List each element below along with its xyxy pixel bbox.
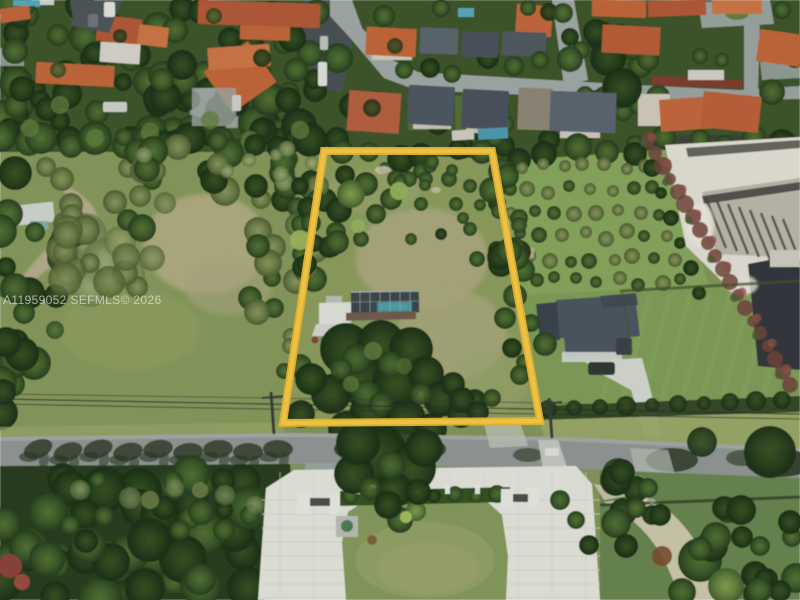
svg-text:A11959052 SEFMLS© 2026: A11959052 SEFMLS© 2026 bbox=[3, 293, 162, 307]
